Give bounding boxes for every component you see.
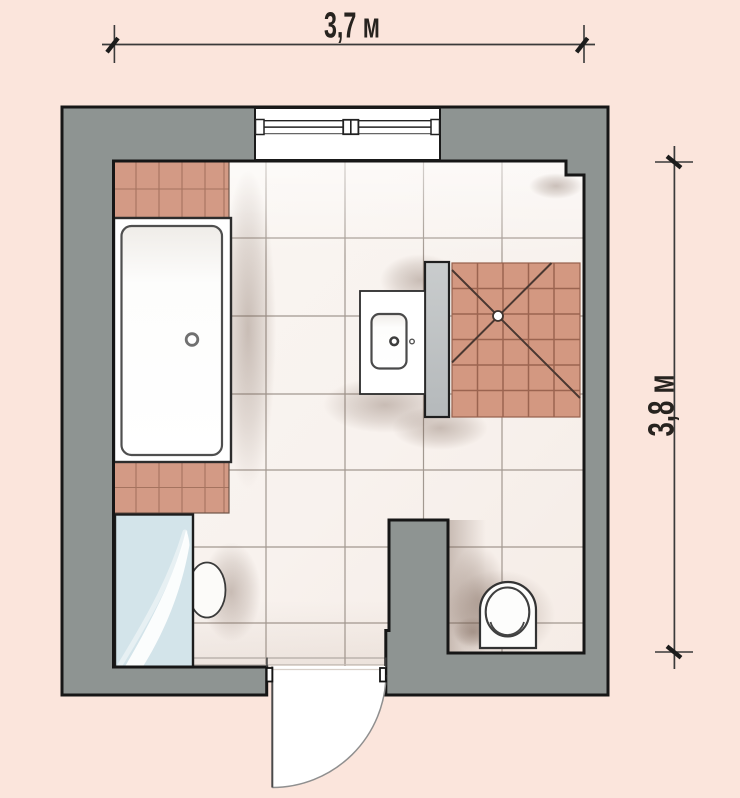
svg-text:3,7 м: 3,7 м <box>324 5 380 46</box>
svg-text:3,8 м: 3,8 м <box>641 375 682 437</box>
